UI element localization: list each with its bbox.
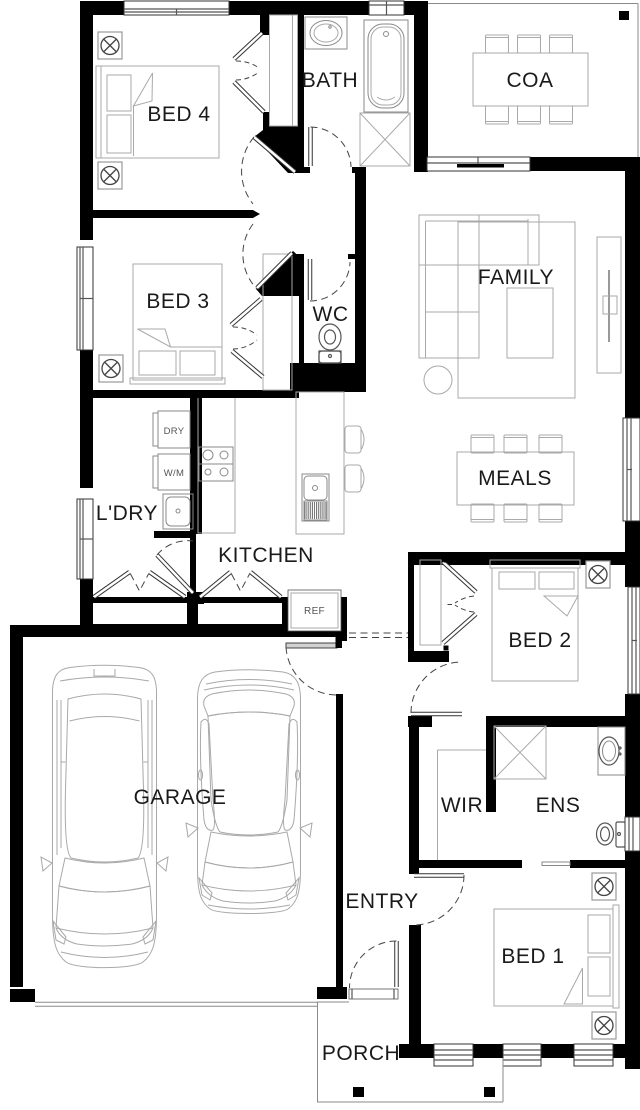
- svg-text:ENS: ENS: [536, 794, 581, 817]
- svg-text:MEALS: MEALS: [478, 467, 552, 490]
- svg-text:DRY: DRY: [164, 426, 185, 437]
- svg-text:REF: REF: [304, 606, 325, 617]
- svg-text:BATH: BATH: [302, 69, 358, 92]
- svg-text:L'DRY: L'DRY: [96, 502, 158, 525]
- svg-text:BED 4: BED 4: [147, 103, 210, 126]
- svg-text:PORCH: PORCH: [322, 1042, 400, 1065]
- svg-text:BED 2: BED 2: [508, 629, 571, 652]
- svg-text:WC: WC: [313, 303, 349, 326]
- svg-text:KITCHEN: KITCHEN: [218, 544, 314, 567]
- svg-text:GARAGE: GARAGE: [134, 786, 227, 809]
- svg-text:ENTRY: ENTRY: [345, 890, 418, 913]
- svg-text:WIR: WIR: [441, 794, 483, 817]
- svg-text:BED 1: BED 1: [501, 945, 564, 968]
- svg-text:BED 3: BED 3: [146, 290, 209, 313]
- svg-text:FAMILY: FAMILY: [478, 266, 554, 289]
- svg-text:W/M: W/M: [164, 468, 184, 479]
- svg-text:COA: COA: [506, 69, 553, 92]
